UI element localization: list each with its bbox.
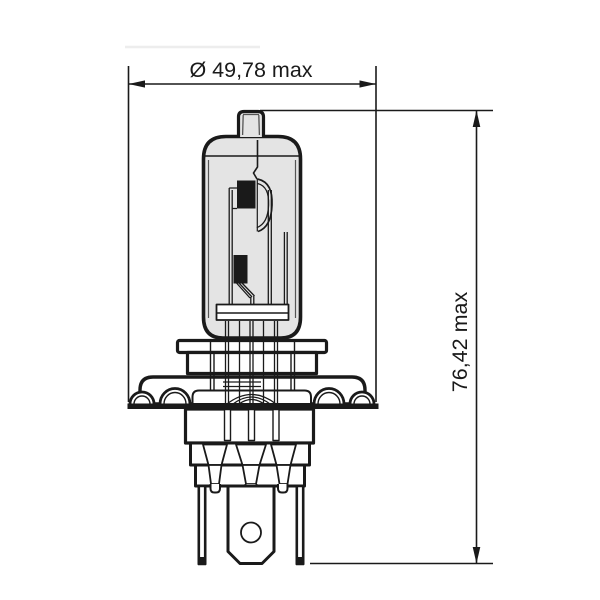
arrowhead-right	[360, 80, 377, 87]
pinch-seal-plate	[217, 305, 289, 321]
upper-filament-shield	[237, 181, 256, 209]
lower-filament-shield	[234, 255, 248, 284]
arrowhead-left	[129, 80, 146, 87]
base-collar	[178, 341, 327, 374]
bulb-drawing	[128, 112, 379, 565]
arrowhead-down	[473, 547, 481, 564]
collar-ring-lower	[188, 353, 317, 374]
base-body	[186, 409, 314, 493]
terminal-blades	[199, 486, 303, 564]
collar-ring-upper	[178, 341, 327, 353]
height-dimension-label: 76,42 max	[448, 292, 472, 393]
bulb-technical-drawing: Ø 49,78 max 76,42 max	[0, 0, 600, 600]
drawing-svg: Ø 49,78 max 76,42 max	[0, 0, 600, 600]
diameter-dimension-label: Ø 49,78 max	[189, 58, 312, 82]
terminal-blade-right	[297, 486, 303, 564]
blade-hole	[241, 523, 261, 543]
arrowhead-up	[473, 111, 481, 128]
terminal-blade-left	[199, 486, 205, 564]
